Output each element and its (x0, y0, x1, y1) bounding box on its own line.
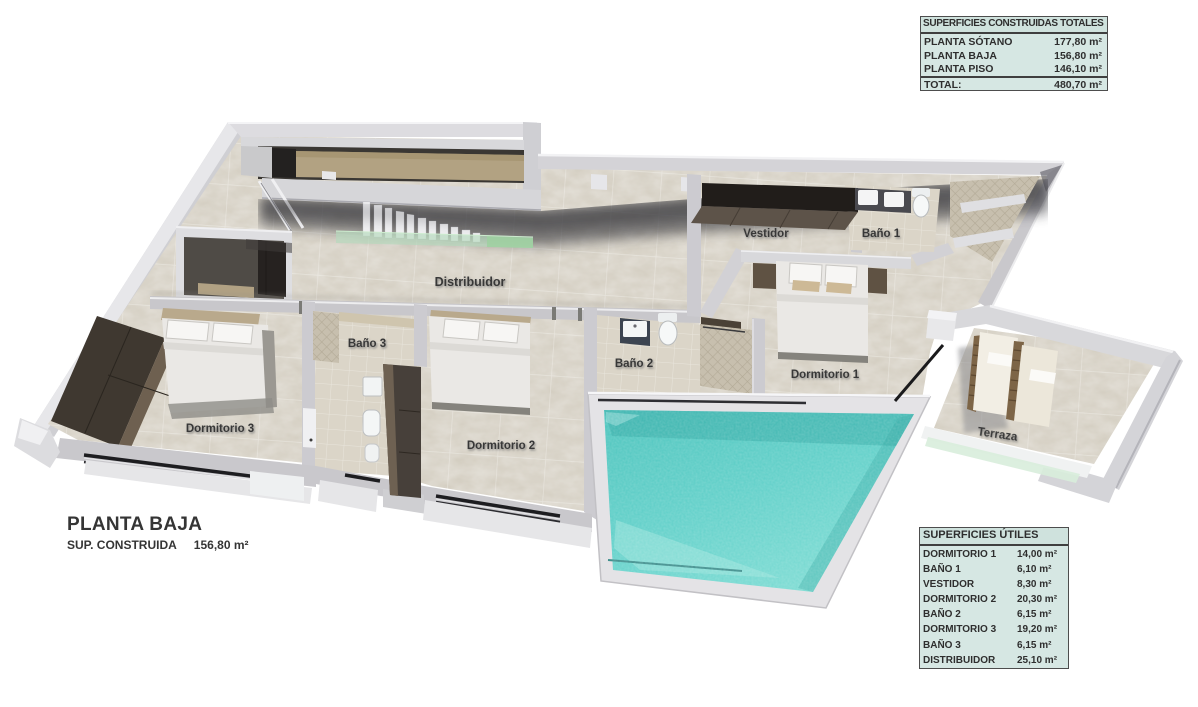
svg-text:Dormitorio 2: Dormitorio 2 (467, 440, 535, 452)
svg-text:Dormitorio 1: Dormitorio 1 (791, 369, 860, 381)
svg-text:Baño 2: Baño 2 (615, 358, 653, 370)
svg-text:Baño 3: Baño 3 (348, 338, 386, 350)
svg-text:Vestidor: Vestidor (743, 228, 789, 240)
svg-text:Baño 1: Baño 1 (862, 228, 901, 240)
svg-text:Dormitorio 3: Dormitorio 3 (186, 423, 254, 435)
svg-text:Distribuidor: Distribuidor (435, 275, 506, 289)
